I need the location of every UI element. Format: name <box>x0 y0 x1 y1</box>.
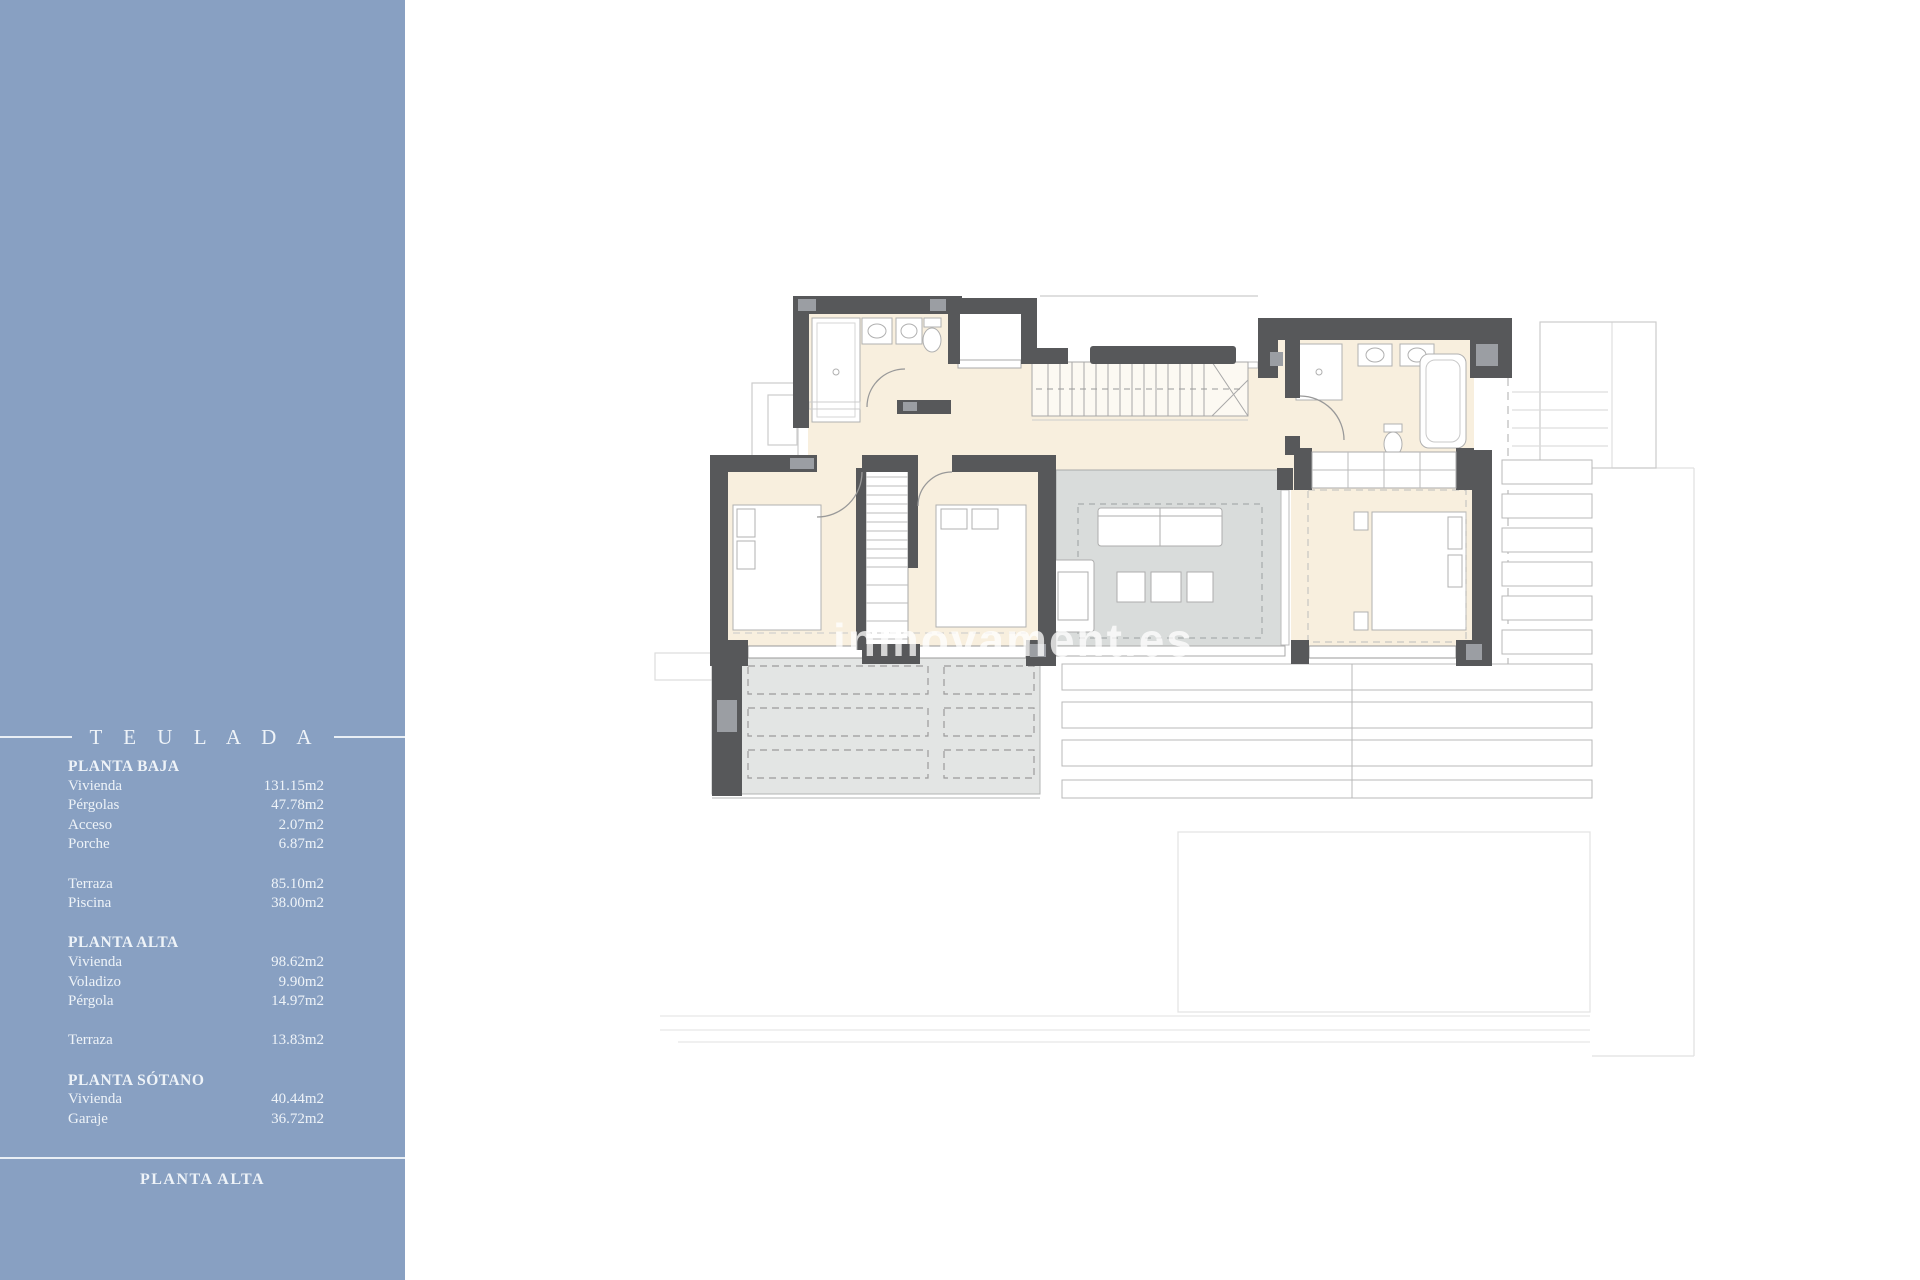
area-value: 131.15m2 <box>264 777 324 797</box>
area-section-planta-alta: PLANTA ALTA Vivienda 98.62m2 Voladizo 9.… <box>68 933 324 1011</box>
footer-rule <box>0 1157 405 1159</box>
area-value: 2.07m2 <box>279 816 324 836</box>
area-value: 98.62m2 <box>271 953 324 973</box>
title-rule-left <box>0 736 72 738</box>
area-section-exterior-baja: Terraza 85.10m2 Piscina 38.00m2 <box>68 875 324 914</box>
area-row: Piscina 38.00m2 <box>68 894 324 914</box>
section-title: PLANTA SÓTANO <box>68 1071 324 1091</box>
area-label: Terraza <box>68 875 113 895</box>
area-row: Terraza 13.83m2 <box>68 1031 324 1051</box>
project-title-block: T E U L A D A <box>0 725 405 749</box>
area-section-exterior-alta: Terraza 13.83m2 <box>68 1031 324 1051</box>
area-row: Garaje 36.72m2 <box>68 1110 324 1130</box>
page: { "sidebar": { "header": "T E U L A D A"… <box>0 0 1920 1280</box>
area-row: Voladizo 9.90m2 <box>68 973 324 993</box>
area-label: Garaje <box>68 1110 108 1130</box>
area-row: Vivienda 131.15m2 <box>68 777 324 797</box>
area-row: Terraza 85.10m2 <box>68 875 324 895</box>
staircase <box>1032 362 1248 420</box>
area-label: Porche <box>68 835 110 855</box>
section-title: PLANTA ALTA <box>68 933 324 953</box>
watermark: inmovament.es <box>833 614 1194 666</box>
area-label: Acceso <box>68 816 112 836</box>
info-sidebar: T E U L A D A PLANTA BAJA Vivienda 131.1… <box>0 0 405 1280</box>
section-title: PLANTA BAJA <box>68 757 324 777</box>
area-table: PLANTA BAJA Vivienda 131.15m2 Pérgolas 4… <box>68 757 324 1129</box>
area-label: Vivienda <box>68 1090 122 1110</box>
area-label: Pérgola <box>68 992 114 1012</box>
area-label: Piscina <box>68 894 111 914</box>
area-value: 40.44m2 <box>271 1090 324 1110</box>
area-label: Terraza <box>68 1031 113 1051</box>
area-value: 9.90m2 <box>279 973 324 993</box>
area-value: 13.83m2 <box>271 1031 324 1051</box>
project-title: T E U L A D A <box>86 725 320 750</box>
area-value: 85.10m2 <box>271 875 324 895</box>
area-label: Vivienda <box>68 953 122 973</box>
area-label: Pérgolas <box>68 796 119 816</box>
area-label: Vivienda <box>68 777 122 797</box>
title-rule-right <box>334 736 406 738</box>
area-row: Pérgolas 47.78m2 <box>68 796 324 816</box>
area-value: 14.97m2 <box>271 992 324 1012</box>
area-row: Vivienda 98.62m2 <box>68 953 324 973</box>
area-value: 36.72m2 <box>271 1110 324 1130</box>
area-row: Pérgola 14.97m2 <box>68 992 324 1012</box>
terrace-deck <box>712 648 1040 798</box>
dressing-closet <box>1312 452 1456 488</box>
area-value: 6.87m2 <box>279 835 324 855</box>
area-label: Voladizo <box>68 973 121 993</box>
area-row: Porche 6.87m2 <box>68 835 324 855</box>
floor-label: PLANTA ALTA <box>0 1171 405 1189</box>
area-value: 47.78m2 <box>271 796 324 816</box>
area-section-planta-sotano: PLANTA SÓTANO Vivienda 40.44m2 Garaje 36… <box>68 1071 324 1130</box>
area-section-planta-baja: PLANTA BAJA Vivienda 131.15m2 Pérgolas 4… <box>68 757 324 855</box>
area-value: 38.00m2 <box>271 894 324 914</box>
area-row: Vivienda 40.44m2 <box>68 1090 324 1110</box>
area-row: Acceso 2.07m2 <box>68 816 324 836</box>
